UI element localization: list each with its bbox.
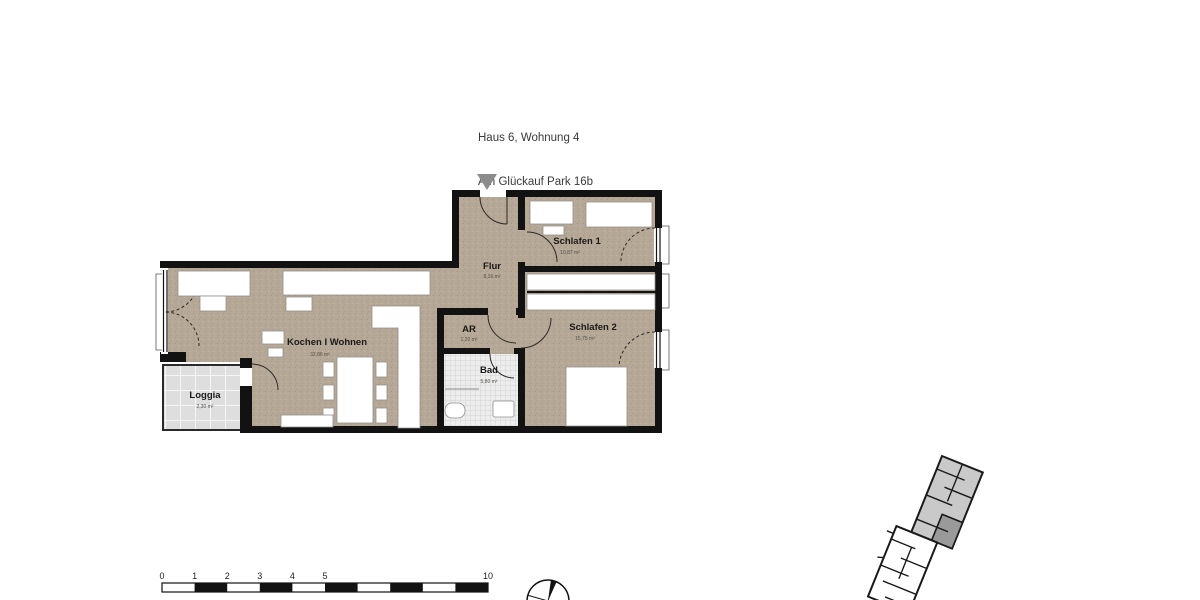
label-ar: AR [462,324,476,335]
north-symbol-icon [522,575,574,600]
label-loggia: Loggia [189,390,221,401]
floorplan-drawing: Flur 8,16 m² Schlafen 1 10,87 m² Schlafe… [0,0,1200,600]
dining-table-and-chairs [323,357,387,423]
window-schlafen2 [654,332,662,368]
area-bad: 5,80 m² [481,379,498,385]
scale-tick-4: 4 [290,571,295,581]
scale-tick-1: 1 [192,571,197,581]
area-schlafen2: 15,75 m² [575,336,595,342]
scale-tick-5: 5 [322,571,327,581]
scale-tick-0: 0 [159,571,164,581]
label-flur: Flur [483,261,501,272]
area-loggia: 2,30 m² [197,404,214,410]
scale-tick-3: 3 [257,571,262,581]
entrance-arrow-icon [477,174,497,190]
area-kochen-wohnen: 32,86 m² [310,352,330,358]
label-schlafen1: Schlafen 1 [553,236,601,247]
label-bad: Bad [480,365,498,376]
label-schlafen2: Schlafen 2 [569,322,617,333]
floorplan-page: Haus 6, Wohnung 4 Am Glückauf Park 16b 1… [0,0,1200,600]
sill-east-2 [662,274,669,308]
toilet [445,403,465,418]
sill-east-3 [662,330,669,370]
area-ar: 1,20 m² [461,337,478,343]
scale-bar: 0 1 2 3 4 5 10 [159,571,493,592]
sill-east-1 [662,226,669,264]
scale-tick-2: 2 [225,571,230,581]
window-schlafen1 [654,228,662,262]
label-kochen-wohnen: Kochen I Wohnen [287,337,367,348]
area-schlafen1: 10,87 m² [560,250,580,256]
washbasin [493,401,514,417]
scale-tick-10: 10 [483,571,493,581]
area-flur: 8,16 m² [484,274,501,280]
keyplan-icon [861,447,982,600]
